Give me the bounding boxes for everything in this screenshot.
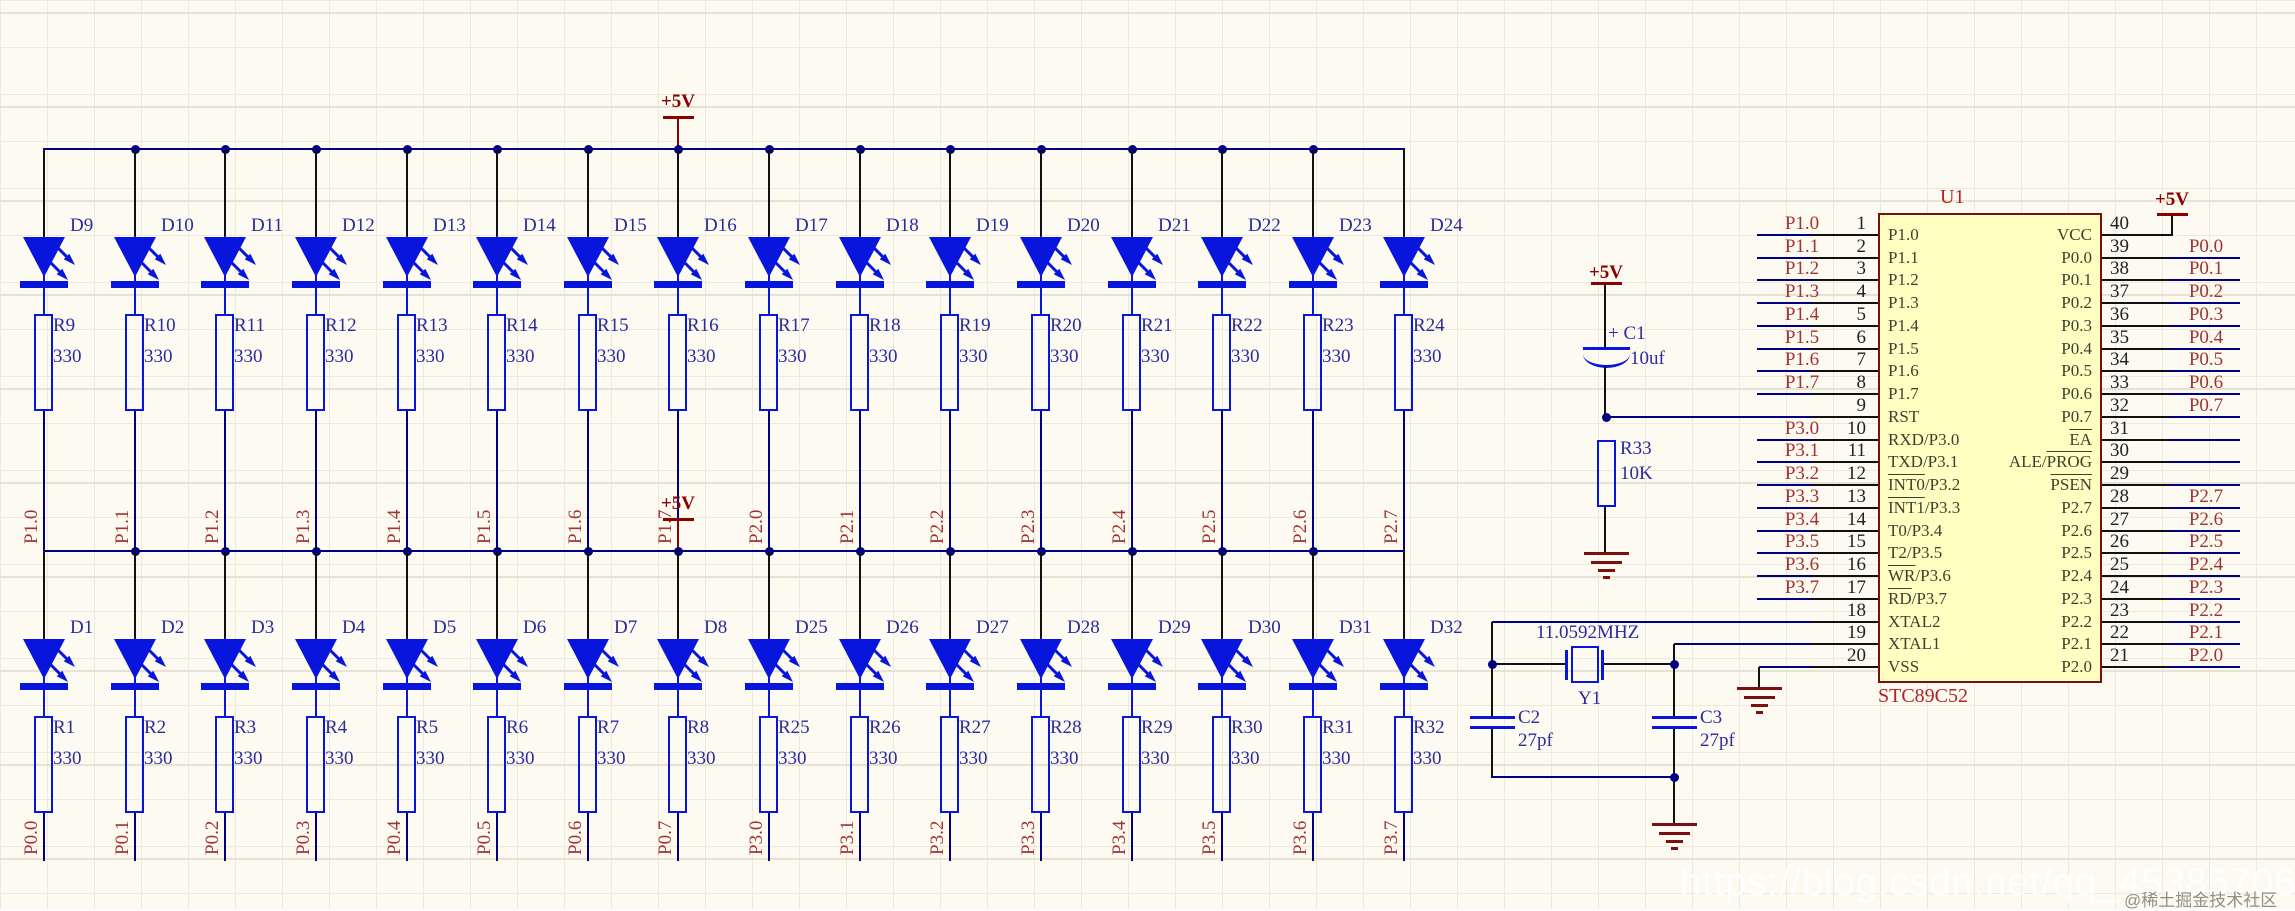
mcu-pin-name-14: T0/P3.4	[1888, 520, 1942, 542]
pin-net-label-P3.6: P3.6	[1772, 554, 1832, 575]
cap-c1-label: + C1	[1608, 323, 1646, 344]
wire	[1403, 149, 1405, 236]
led-label-D2: D2	[161, 617, 184, 638]
crystal-wire-right	[1604, 663, 1675, 665]
wire	[768, 696, 770, 716]
wire	[224, 149, 226, 236]
pin-net-label-P1.6: P1.6	[1772, 349, 1832, 370]
resistor-value-R17: 330	[778, 346, 807, 367]
resistor-value-R6: 330	[506, 748, 535, 769]
mcu-pin-name-39: P0.0	[1952, 247, 2092, 269]
resistor-value-R24: 330	[1413, 346, 1442, 367]
mcu-pin-name-5: P1.4	[1888, 315, 1919, 337]
pin-net-label-P1.5: P1.5	[1772, 327, 1832, 348]
mcu-pin-name-31: EA	[1952, 429, 2092, 451]
mcu-pin-name-6: P1.5	[1888, 338, 1919, 360]
mcu-pin-number-30: 30	[2110, 440, 2158, 461]
pin-net-label-P0.1: P0.1	[2176, 258, 2236, 279]
wire	[1040, 551, 1042, 638]
mcu-pin-number-21: 21	[2110, 645, 2158, 666]
wire	[43, 696, 45, 716]
wire	[496, 551, 498, 638]
wire	[859, 696, 861, 716]
wire	[134, 696, 136, 716]
pin-net-label-P3.1: P3.1	[837, 791, 861, 855]
wire	[587, 696, 589, 716]
wire	[1312, 149, 1314, 236]
wire	[1673, 644, 1675, 716]
mcu-pin-number-39: 39	[2110, 236, 2158, 257]
wire	[406, 551, 408, 638]
led-symbol-D32	[1354, 638, 1454, 696]
mcu-pin-number-20: 20	[1818, 645, 1866, 666]
wire	[587, 294, 589, 314]
power-bus	[43, 148, 1405, 150]
pin-net-label-P2.7: P2.7	[1381, 480, 1405, 544]
led-label-D16: D16	[704, 215, 737, 236]
wire	[859, 551, 861, 638]
resistor-label-R26: R26	[869, 717, 901, 738]
resistor-label-R2: R2	[144, 717, 166, 738]
wire	[496, 149, 498, 236]
wire	[315, 294, 317, 314]
pin-net-label-P1.2: P1.2	[1772, 258, 1832, 279]
pin-net-label-P0.6: P0.6	[565, 791, 589, 855]
led-symbol-D3	[175, 638, 275, 696]
resistor-label-R4: R4	[325, 717, 347, 738]
pin-net-label-P1.7: P1.7	[1772, 372, 1832, 393]
mcu-pin-number-19: 19	[1818, 622, 1866, 643]
resistor-value-R26: 330	[869, 748, 898, 769]
pin-net-label-P3.5: P3.5	[1199, 791, 1223, 855]
pin-net-label-P0.4: P0.4	[384, 791, 408, 855]
resistor-label-R19: R19	[959, 315, 991, 336]
net-wire-right-21	[2168, 666, 2240, 668]
crystal-freq-label: 11.0592MHZ	[1536, 622, 1639, 643]
mcu-pin-number-26: 26	[2110, 531, 2158, 552]
led-label-D21: D21	[1158, 215, 1191, 236]
wire	[1040, 149, 1042, 236]
resistor-R22	[1212, 314, 1231, 411]
wire	[496, 696, 498, 716]
led-symbol-D21	[1082, 236, 1182, 294]
wire	[315, 149, 317, 236]
mcu-pin-name-4: P1.3	[1888, 292, 1919, 314]
ground-symbol	[1603, 576, 1610, 579]
mcu-pin-number-23: 23	[2110, 600, 2158, 621]
resistor-R21	[1122, 314, 1141, 411]
wire	[1221, 696, 1223, 716]
resistor-value-R12: 330	[325, 346, 354, 367]
led-symbol-D1	[0, 638, 94, 696]
wire	[43, 551, 45, 638]
ground-symbol	[1659, 832, 1690, 835]
pin-net-label-P0.0: P0.0	[2176, 236, 2236, 257]
resistor-label-R31: R31	[1322, 717, 1354, 738]
resistor-r33-body	[1597, 440, 1616, 507]
led-symbol-D6	[447, 638, 547, 696]
resistor-r33-label: R33	[1620, 438, 1652, 459]
mcu-pin-number-32: 32	[2110, 395, 2158, 416]
pin-net-label-P2.3: P2.3	[1018, 480, 1042, 544]
wire	[1312, 294, 1314, 314]
crystal-plate-left	[1565, 650, 1568, 680]
led-label-D27: D27	[976, 617, 1009, 638]
pin-net-label-P2.2: P2.2	[2176, 600, 2236, 621]
cap-c2-label: C2	[1518, 707, 1540, 728]
mcu-pin-number-31: 31	[2110, 418, 2158, 439]
mcu-pin-number-35: 35	[2110, 327, 2158, 348]
power-5v-label: +5V	[2142, 189, 2202, 210]
resistor-R16	[668, 314, 687, 411]
led-symbol-D25	[719, 638, 819, 696]
wire	[315, 551, 317, 638]
wire	[1131, 696, 1133, 716]
resistor-label-R30: R30	[1231, 717, 1263, 738]
power-5v-label: +5V	[1576, 262, 1636, 283]
led-symbol-D29	[1082, 638, 1182, 696]
resistor-R23	[1303, 314, 1322, 411]
resistor-label-R8: R8	[687, 717, 709, 738]
net-wire-P3.7	[1757, 598, 1812, 600]
pin-net-label-P0.5: P0.5	[2176, 349, 2236, 370]
pin-net-label-P3.7: P3.7	[1381, 791, 1405, 855]
pin-net-label-P0.4: P0.4	[2176, 327, 2236, 348]
led-label-D23: D23	[1339, 215, 1372, 236]
resistor-label-R16: R16	[687, 315, 719, 336]
pin-net-label-P3.3: P3.3	[1018, 791, 1042, 855]
led-label-D9: D9	[70, 215, 93, 236]
resistor-label-R13: R13	[416, 315, 448, 336]
resistor-value-R8: 330	[687, 748, 716, 769]
pin-net-label-P2.4: P2.4	[1109, 480, 1133, 544]
net-wire-P1.7	[1757, 393, 1812, 395]
mcu-pin-number-27: 27	[2110, 509, 2158, 530]
led-label-D31: D31	[1339, 617, 1372, 638]
wire	[1403, 696, 1405, 716]
wire	[949, 294, 951, 314]
ground-symbol	[1598, 569, 1615, 572]
resistor-value-R19: 330	[959, 346, 988, 367]
mcu-pin-name-37: P0.2	[1952, 292, 2092, 314]
mcu-pin-name-24: P2.3	[1952, 588, 2092, 610]
resistor-value-R5: 330	[416, 748, 445, 769]
resistor-value-R4: 330	[325, 748, 354, 769]
resistor-label-R18: R18	[869, 315, 901, 336]
led-symbol-D9	[0, 236, 94, 294]
mcu-pin-name-40: VCC	[1952, 224, 2092, 246]
pin-net-label-P0.3: P0.3	[2176, 304, 2236, 325]
wire	[134, 551, 136, 638]
mcu-pin-name-32: P0.7	[1952, 406, 2092, 428]
mcu-pin-number-36: 36	[2110, 304, 2158, 325]
led-symbol-D2	[85, 638, 185, 696]
cap-c2-plate-bottom	[1470, 726, 1515, 729]
led-label-D29: D29	[1158, 617, 1191, 638]
led-label-D30: D30	[1248, 617, 1281, 638]
resistor-label-R25: R25	[778, 717, 810, 738]
resistor-label-R24: R24	[1413, 315, 1445, 336]
wire	[1131, 551, 1133, 638]
led-symbol-D11	[175, 236, 275, 294]
mcu-pin-name-11: TXD/P3.1	[1888, 451, 1958, 473]
pin-net-label-P2.7: P2.7	[2176, 486, 2236, 507]
led-label-D32: D32	[1430, 617, 1463, 638]
led-symbol-D16	[628, 236, 728, 294]
mcu-pin-stub-21	[2102, 666, 2168, 668]
mcu-pin-number-38: 38	[2110, 258, 2158, 279]
led-symbol-D17	[719, 236, 819, 294]
resistor-label-R11: R11	[234, 315, 265, 336]
mcu-pin-stub-20	[1812, 666, 1878, 668]
resistor-label-R22: R22	[1231, 315, 1263, 336]
pin-net-label-P1.2: P1.2	[202, 480, 226, 544]
led-label-D4: D4	[342, 617, 365, 638]
ground-symbol	[1671, 847, 1678, 850]
led-symbol-D27	[900, 638, 1000, 696]
resistor-value-R1: 330	[53, 748, 82, 769]
led-symbol-D28	[991, 638, 1091, 696]
led-label-D6: D6	[523, 617, 546, 638]
wire	[406, 696, 408, 716]
resistor-R15	[578, 314, 597, 411]
pin-net-label-P3.1: P3.1	[1772, 440, 1832, 461]
resistor-value-R10: 330	[144, 346, 173, 367]
resistor-r33-value: 10K	[1620, 463, 1653, 484]
pin-net-label-P2.0: P2.0	[746, 480, 770, 544]
wire	[587, 149, 589, 236]
led-label-D17: D17	[795, 215, 828, 236]
led-label-D24: D24	[1430, 215, 1463, 236]
power-5v-bar	[1591, 282, 1622, 285]
wire	[1604, 285, 1606, 347]
mcu-pin-name-20: VSS	[1888, 656, 1919, 678]
resistor-value-R23: 330	[1322, 346, 1351, 367]
resistor-value-R7: 330	[597, 748, 626, 769]
resistor-value-R30: 330	[1231, 748, 1260, 769]
mcu-pin-name-13: INT1/P3.3	[1888, 497, 1960, 519]
cap-c3-plate-top	[1652, 716, 1697, 719]
led-symbol-D14	[447, 236, 547, 294]
mcu-pin-number-33: 33	[2110, 372, 2158, 393]
wire	[1491, 622, 1493, 716]
resistor-R9	[34, 314, 53, 411]
wire	[768, 294, 770, 314]
resistor-label-R10: R10	[144, 315, 176, 336]
ground-symbol	[1666, 840, 1683, 843]
wire	[1040, 294, 1042, 314]
resistor-R18	[850, 314, 869, 411]
mcu-pin-name-18: XTAL2	[1888, 611, 1940, 633]
wire	[406, 294, 408, 314]
resistor-value-R9: 330	[53, 346, 82, 367]
pin-net-label-P2.6: P2.6	[2176, 509, 2236, 530]
mcu-pin-number-40: 40	[2110, 213, 2158, 234]
pin-net-label-P2.1: P2.1	[837, 480, 861, 544]
led-label-D28: D28	[1067, 617, 1100, 638]
pin-net-label-P3.4: P3.4	[1772, 509, 1832, 530]
led-symbol-D13	[357, 236, 457, 294]
wire	[1491, 729, 1493, 777]
wire	[1131, 149, 1133, 236]
wire	[1221, 294, 1223, 314]
vcc-riser	[2171, 216, 2173, 235]
resistor-label-R9: R9	[53, 315, 75, 336]
crystal-wire-left	[1492, 663, 1566, 665]
ground-symbol	[1737, 687, 1782, 690]
pin-net-label-P2.4: P2.4	[2176, 554, 2236, 575]
wire	[768, 149, 770, 236]
pin-net-label-P2.3: P2.3	[2176, 577, 2236, 598]
resistor-label-R14: R14	[506, 315, 538, 336]
wire	[1312, 696, 1314, 716]
led-symbol-D26	[810, 638, 910, 696]
led-symbol-D4	[266, 638, 366, 696]
resistor-label-R23: R23	[1322, 315, 1354, 336]
mcu-pin-name-35: P0.4	[1952, 338, 2092, 360]
cap-c1-plate-top	[1583, 347, 1630, 350]
led-label-D18: D18	[886, 215, 919, 236]
mcu-pin-number-24: 24	[2110, 577, 2158, 598]
pin-net-label-P0.7: P0.7	[2176, 395, 2236, 416]
resistor-value-R27: 330	[959, 748, 988, 769]
pin-net-label-P2.2: P2.2	[927, 480, 951, 544]
pin-net-label-P1.1: P1.1	[112, 480, 136, 544]
cap-c2-plate-top	[1470, 716, 1515, 719]
led-label-D14: D14	[523, 215, 556, 236]
mcu-pin-name-25: P2.4	[1952, 565, 2092, 587]
cap-c1-plate-curved	[1583, 354, 1630, 368]
wire	[224, 551, 226, 638]
wire	[677, 294, 679, 314]
pin-net-label-P1.0: P1.0	[1772, 213, 1832, 234]
led-label-D5: D5	[433, 617, 456, 638]
led-symbol-D5	[357, 638, 457, 696]
led-symbol-D10	[85, 236, 185, 294]
mcu-pin-name-38: P0.1	[1952, 269, 2092, 291]
led-label-D13: D13	[433, 215, 466, 236]
pin-net-label-P1.1: P1.1	[1772, 236, 1832, 257]
pin-net-label-P2.5: P2.5	[2176, 531, 2236, 552]
pin-net-label-P3.2: P3.2	[927, 791, 951, 855]
resistor-value-R32: 330	[1413, 748, 1442, 769]
pin-net-label-P0.2: P0.2	[2176, 281, 2236, 302]
led-symbol-D15	[538, 236, 638, 294]
wire	[677, 149, 679, 236]
resistor-R11	[215, 314, 234, 411]
mcu-pin-name-17: RD/P3.7	[1888, 588, 1947, 610]
cap-c2-value: 27pf	[1518, 730, 1553, 751]
resistor-label-R1: R1	[53, 717, 75, 738]
schematic-canvas: U1 STC89C52 + C1 10uf R33 10K 11.0592MHZ…	[0, 0, 2295, 909]
resistor-value-R21: 330	[1141, 346, 1170, 367]
power-5v-bar	[2157, 213, 2188, 216]
led-symbol-D7	[538, 638, 638, 696]
wire	[768, 551, 770, 638]
resistor-value-R18: 330	[869, 346, 898, 367]
led-symbol-D18	[810, 236, 910, 294]
wire	[677, 551, 679, 638]
mcu-pin-number-9: 9	[1818, 395, 1866, 416]
resistor-label-R21: R21	[1141, 315, 1173, 336]
ground-symbol	[1652, 823, 1697, 826]
resistor-label-R6: R6	[506, 717, 528, 738]
led-label-D12: D12	[342, 215, 375, 236]
led-symbol-D31	[1263, 638, 1363, 696]
mcu-pin-name-22: P2.1	[1952, 633, 2092, 655]
pin-net-label-P1.6: P1.6	[565, 480, 589, 544]
resistor-value-R20: 330	[1050, 346, 1079, 367]
pin-net-label-P3.0: P3.0	[746, 791, 770, 855]
wire	[134, 294, 136, 314]
crystal-ref-label: Y1	[1578, 688, 1601, 709]
resistor-value-R31: 330	[1322, 748, 1351, 769]
resistor-label-R12: R12	[325, 315, 357, 336]
wire	[1604, 366, 1606, 417]
wire	[859, 149, 861, 236]
mcu-pin-name-23: P2.2	[1952, 611, 2092, 633]
wire	[677, 696, 679, 716]
mcu-pin-name-26: P2.5	[1952, 542, 2092, 564]
pin-net-label-P0.1: P0.1	[112, 791, 136, 855]
led-symbol-D23	[1263, 236, 1363, 294]
led-label-D25: D25	[795, 617, 828, 638]
led-label-D15: D15	[614, 215, 647, 236]
wire	[43, 149, 45, 236]
mcu-pin-name-8: P1.7	[1888, 383, 1919, 405]
mcu-pin-name-2: P1.1	[1888, 247, 1919, 269]
mcu-pin-name-19: XTAL1	[1888, 633, 1940, 655]
resistor-label-R17: R17	[778, 315, 810, 336]
led-label-D19: D19	[976, 215, 1009, 236]
wire	[1758, 667, 1760, 687]
mcu-pin-name-1: P1.0	[1888, 224, 1919, 246]
resistor-value-R15: 330	[597, 346, 626, 367]
mcu-part-label: STC89C52	[1878, 686, 1968, 707]
xtal2-wire	[1492, 621, 1812, 623]
mcu-pin-number-22: 22	[2110, 622, 2158, 643]
pin-net-label-P0.7: P0.7	[655, 791, 679, 855]
resistor-R12	[306, 314, 325, 411]
mcu-pin-number-29: 29	[2110, 463, 2158, 484]
watermark-badge: @稀土掘金技术社区	[2124, 886, 2277, 911]
pin-net-label-P2.1: P2.1	[2176, 622, 2236, 643]
pin-net-label-P3.2: P3.2	[1772, 463, 1832, 484]
mcu-pin-name-9: RST	[1888, 406, 1919, 428]
led-symbol-D30	[1172, 638, 1272, 696]
wire	[1312, 551, 1314, 638]
pin-net-label-P2.5: P2.5	[1199, 480, 1223, 544]
ground-symbol	[1584, 552, 1629, 555]
resistor-value-R11: 330	[234, 346, 263, 367]
led-label-D26: D26	[886, 617, 919, 638]
led-symbol-D22	[1172, 236, 1272, 294]
wire	[1604, 507, 1606, 552]
wire	[224, 696, 226, 716]
power-5v-label: +5V	[648, 493, 708, 514]
resistor-value-R25: 330	[778, 748, 807, 769]
pin-net-label-P3.7: P3.7	[1772, 577, 1832, 598]
wire	[587, 551, 589, 638]
pin-net-label-P3.5: P3.5	[1772, 531, 1832, 552]
net-wire-right-30	[2168, 461, 2240, 463]
wire	[1221, 551, 1223, 638]
led-label-D10: D10	[161, 215, 194, 236]
wire	[406, 149, 408, 236]
wire	[949, 551, 951, 638]
junction-dot	[1488, 660, 1497, 669]
resistor-value-R22: 330	[1231, 346, 1260, 367]
